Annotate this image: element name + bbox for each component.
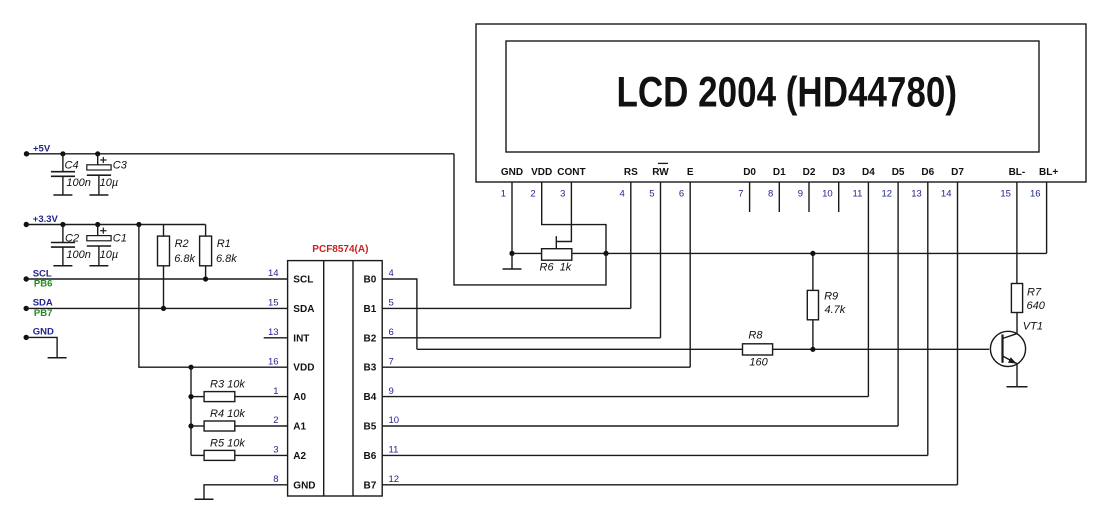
svg-text:13: 13 [268, 327, 279, 338]
svg-text:11: 11 [389, 445, 399, 456]
svg-text:R9: R9 [824, 290, 838, 302]
svg-text:4.7k: 4.7k [825, 304, 846, 316]
svg-text:15: 15 [1000, 189, 1011, 200]
svg-text:D5: D5 [892, 167, 905, 178]
svg-text:6: 6 [389, 327, 394, 338]
svg-text:11: 11 [853, 189, 863, 200]
svg-text:C3: C3 [113, 160, 128, 172]
svg-text:R5 10k: R5 10k [210, 437, 245, 449]
svg-text:7: 7 [389, 356, 394, 367]
svg-text:SDA: SDA [293, 304, 314, 315]
svg-text:PCF8574(A): PCF8574(A) [312, 244, 368, 255]
svg-text:4: 4 [389, 268, 394, 279]
svg-text:R2: R2 [175, 238, 189, 250]
svg-text:6.8k: 6.8k [216, 253, 237, 265]
svg-text:BL-: BL- [1009, 167, 1026, 178]
svg-text:+5V: +5V [33, 144, 51, 155]
svg-text:D1: D1 [773, 167, 786, 178]
svg-text:R1: R1 [217, 238, 231, 250]
svg-text:BL+: BL+ [1039, 167, 1058, 178]
svg-text:+3.3V: +3.3V [33, 214, 59, 225]
svg-text:VDD: VDD [293, 363, 314, 374]
svg-text:GND: GND [293, 480, 315, 491]
svg-text:C4: C4 [65, 160, 79, 172]
svg-text:6.8k: 6.8k [174, 253, 195, 265]
svg-text:GND: GND [501, 167, 523, 178]
svg-text:LCD 2004 (HD44780): LCD 2004 (HD44780) [617, 68, 958, 116]
svg-text:A2: A2 [293, 451, 306, 462]
svg-text:PB7: PB7 [34, 308, 52, 319]
svg-text:100n: 100n [66, 177, 90, 189]
svg-text:D3: D3 [832, 167, 845, 178]
svg-text:C1: C1 [113, 232, 127, 244]
svg-text:12: 12 [882, 189, 893, 200]
svg-text:160: 160 [749, 357, 768, 369]
svg-text:D7: D7 [951, 167, 964, 178]
svg-text:D6: D6 [921, 167, 934, 178]
svg-text:VDD: VDD [531, 167, 552, 178]
svg-text:B5: B5 [364, 422, 377, 433]
svg-text:B2: B2 [364, 333, 377, 344]
svg-text:INT: INT [293, 333, 309, 344]
svg-text:VT1: VT1 [1023, 321, 1043, 333]
svg-text:R4 10k: R4 10k [210, 408, 245, 420]
svg-text:B7: B7 [364, 480, 377, 491]
svg-text:D0: D0 [743, 167, 756, 178]
svg-text:B0: B0 [364, 275, 377, 286]
svg-text:12: 12 [389, 474, 400, 485]
svg-text:R7: R7 [1027, 287, 1042, 299]
svg-text:GND: GND [33, 327, 54, 338]
svg-text:8: 8 [768, 189, 773, 200]
svg-text:D2: D2 [803, 167, 816, 178]
svg-text:C2: C2 [65, 232, 79, 244]
svg-text:A0: A0 [293, 392, 306, 403]
svg-text:14: 14 [268, 268, 279, 279]
svg-text:B4: B4 [364, 392, 377, 403]
svg-text:B1: B1 [364, 304, 377, 315]
svg-text:1: 1 [501, 189, 506, 200]
svg-text:2: 2 [530, 189, 535, 200]
svg-text:1: 1 [273, 386, 278, 397]
svg-text:RW: RW [652, 167, 669, 178]
svg-text:10µ: 10µ [100, 177, 119, 189]
svg-text:7: 7 [738, 189, 743, 200]
svg-text:2: 2 [273, 415, 278, 426]
svg-text:8: 8 [273, 474, 278, 485]
svg-text:B3: B3 [364, 363, 377, 374]
svg-text:10: 10 [389, 415, 400, 426]
svg-text:16: 16 [268, 356, 279, 367]
svg-text:5: 5 [389, 298, 394, 309]
svg-text:13: 13 [911, 189, 922, 200]
svg-text:PB6: PB6 [34, 279, 52, 290]
svg-text:15: 15 [268, 298, 279, 309]
svg-text:9: 9 [389, 386, 394, 397]
svg-text:5: 5 [649, 189, 654, 200]
svg-text:R8: R8 [748, 329, 763, 341]
svg-text:9: 9 [798, 189, 803, 200]
svg-text:6: 6 [679, 189, 684, 200]
svg-text:10µ: 10µ [100, 249, 119, 261]
svg-text:3: 3 [560, 189, 565, 200]
svg-text:E: E [687, 167, 694, 178]
svg-text:SCL: SCL [293, 275, 313, 286]
svg-text:R3 10k: R3 10k [210, 379, 245, 391]
svg-text:R6 1k: R6 1k [540, 262, 572, 274]
svg-text:640: 640 [1027, 300, 1046, 312]
svg-text:4: 4 [620, 189, 625, 200]
svg-text:16: 16 [1030, 189, 1041, 200]
svg-text:100n: 100n [66, 249, 90, 261]
svg-text:RS: RS [624, 167, 638, 178]
svg-text:CONT: CONT [557, 167, 585, 178]
svg-text:D4: D4 [862, 167, 875, 178]
svg-text:3: 3 [273, 445, 278, 456]
svg-text:A1: A1 [293, 422, 306, 433]
svg-text:14: 14 [941, 189, 952, 200]
svg-text:B6: B6 [364, 451, 377, 462]
svg-text:10: 10 [822, 189, 833, 200]
